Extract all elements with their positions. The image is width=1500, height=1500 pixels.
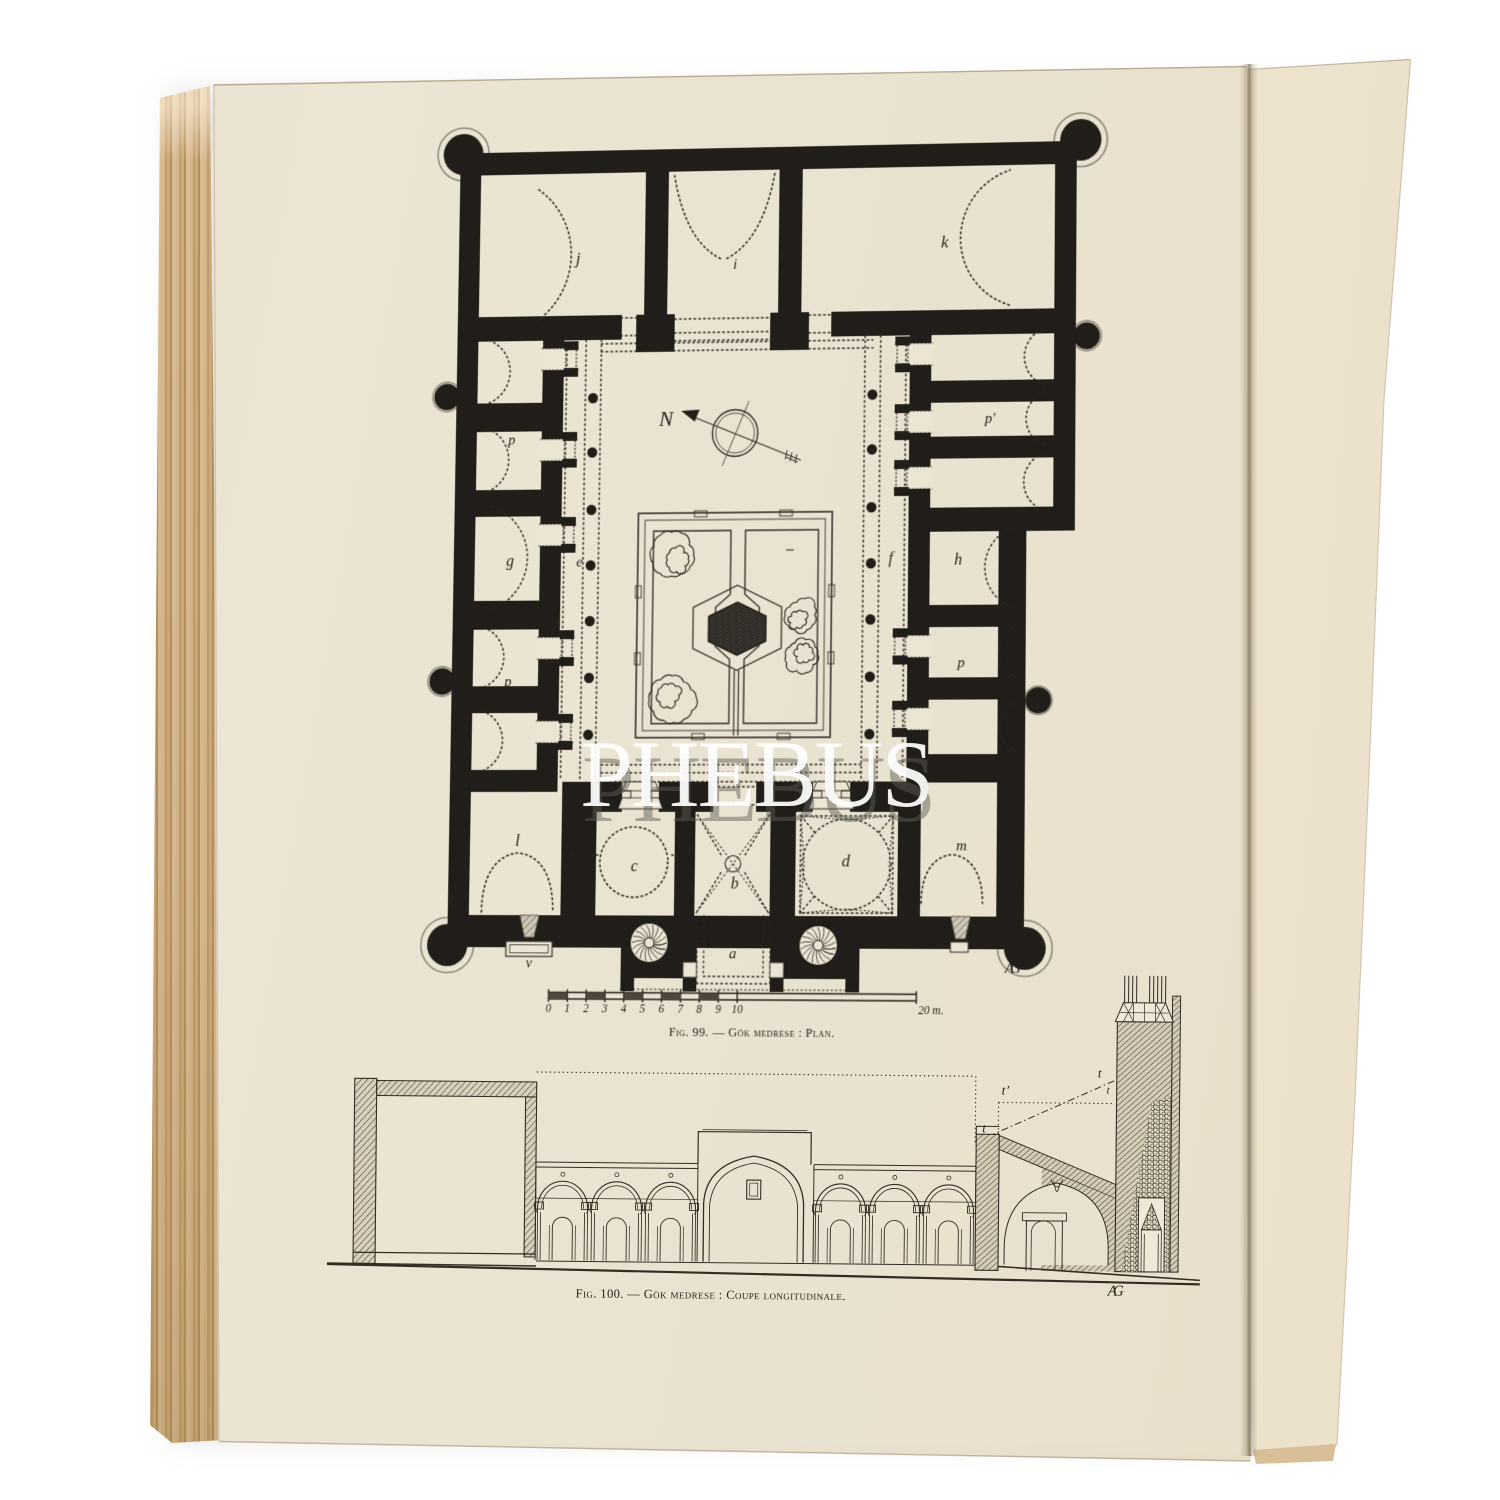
svg-text:c: c <box>631 857 638 875</box>
svg-text:1: 1 <box>564 1002 570 1015</box>
svg-text:6: 6 <box>658 1003 664 1016</box>
svg-text:d: d <box>842 853 851 871</box>
svg-text:4: 4 <box>621 1003 627 1016</box>
svg-text:i: i <box>733 256 737 273</box>
svg-text:20 m.: 20 m. <box>918 1005 943 1018</box>
svg-text:l: l <box>515 832 520 850</box>
svg-text:0: 0 <box>545 1002 551 1015</box>
svg-text:p: p <box>956 655 965 672</box>
svg-text:e: e <box>576 554 583 571</box>
svg-text:8: 8 <box>696 1003 702 1016</box>
svg-text:j: j <box>574 250 581 268</box>
svg-text:h: h <box>954 551 962 569</box>
svg-text:g: g <box>506 553 514 571</box>
svg-text:v: v <box>526 955 532 971</box>
svg-text:m: m <box>956 838 967 855</box>
svg-text:2: 2 <box>583 1003 589 1016</box>
svg-text:5: 5 <box>640 1003 646 1016</box>
svg-text:9: 9 <box>715 1003 721 1016</box>
svg-text:b: b <box>731 875 739 893</box>
svg-text:N: N <box>658 406 675 431</box>
svg-text:Fig. 99. — Gök medrese : Plan.: Fig. 99. — Gök medrese : Plan. <box>669 1024 835 1040</box>
svg-text:a: a <box>729 946 737 963</box>
svg-text:7: 7 <box>677 1003 683 1016</box>
svg-text:p': p' <box>984 410 997 427</box>
svg-text:p: p <box>507 432 515 449</box>
svg-text:f: f <box>888 549 894 567</box>
svg-text:10: 10 <box>731 1003 743 1016</box>
svg-text:p: p <box>503 674 511 691</box>
svg-text:3: 3 <box>601 1003 608 1016</box>
svg-text:k: k <box>941 234 949 252</box>
